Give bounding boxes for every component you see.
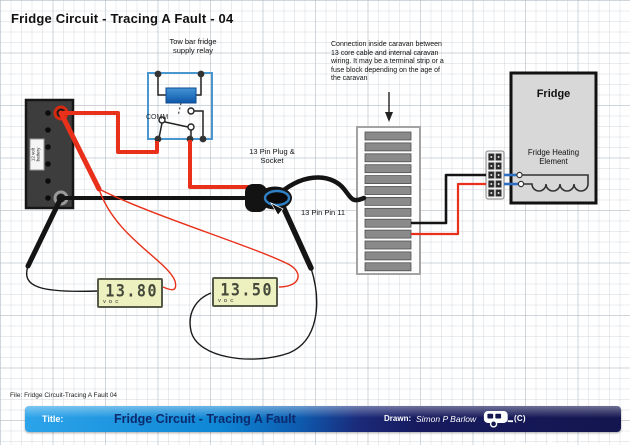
footer-title-label: Title:: [42, 406, 63, 432]
wiring-diagram-canvas: Fridge Circuit - Tracing A Fault - 04 To…: [0, 0, 630, 445]
multimeter-2-mode: DC: [224, 298, 237, 303]
footer-drawn-by: Simon P Barlow: [416, 406, 476, 432]
multimeter-2: 13.50 VDC: [212, 277, 278, 307]
diagram-artwork: [0, 0, 630, 445]
page-title: Fridge Circuit - Tracing A Fault - 04: [11, 11, 233, 26]
meter1-red-lead: [99, 189, 176, 290]
fridge-terminal-block: [486, 151, 504, 199]
multimeter-1: 13.80 VDC: [97, 278, 163, 308]
connection-note: Connection inside caravan between 13 cor…: [331, 41, 483, 84]
battery-label: 12 volt battery: [30, 139, 45, 171]
footer-title-bar: Title: Fridge Circuit - Tracing A Fault …: [25, 406, 621, 432]
note-arrow: [385, 92, 393, 122]
heating-element-label: Fridge Heating Element: [513, 148, 594, 166]
terminal-strip: [357, 127, 420, 274]
wire-strip-to-block-red: [411, 184, 486, 234]
footer-title: Fridge Circuit - Tracing A Fault: [114, 406, 296, 432]
relay-switch-arm: [165, 122, 188, 127]
footer-drawn-label: Drawn:: [384, 406, 411, 432]
footer-copyright: (C) CaravanChronicles.com: [514, 406, 621, 445]
file-line: File: Fridge Circuit-Tracing A Fault 04: [10, 392, 117, 399]
meter1-black-lead: [27, 266, 98, 291]
pin11-label: 13 Pin Pin 11: [301, 209, 345, 218]
cable-plug-to-strip: [280, 177, 364, 200]
relay-coil: [166, 88, 196, 103]
wire-strip-to-block-black: [411, 175, 486, 223]
plug-label: 13 Pin Plug & Socket: [234, 148, 310, 165]
fridge-title: Fridge: [511, 88, 596, 100]
relay-label: Tow bar fridge supply relay: [147, 38, 239, 55]
relay-comm-label: COMM: [146, 114, 168, 121]
tow-bar-relay: [148, 71, 212, 143]
caravan-icon: [483, 410, 513, 428]
multimeter-1-mode: DC: [109, 299, 122, 304]
